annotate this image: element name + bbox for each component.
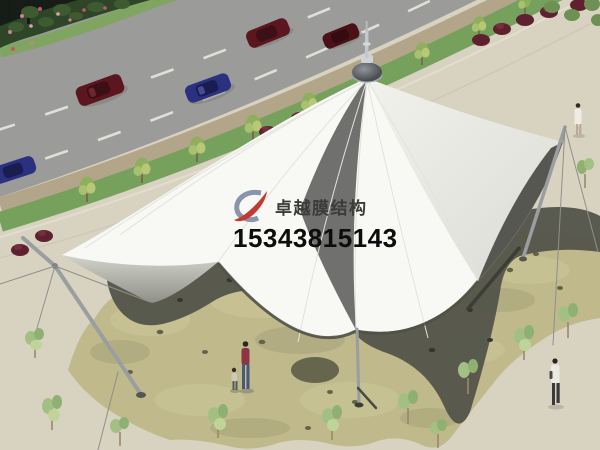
membrane-structure-rendering: 卓越膜结构 15343815143 <box>0 0 600 450</box>
scene-canvas <box>0 0 600 450</box>
